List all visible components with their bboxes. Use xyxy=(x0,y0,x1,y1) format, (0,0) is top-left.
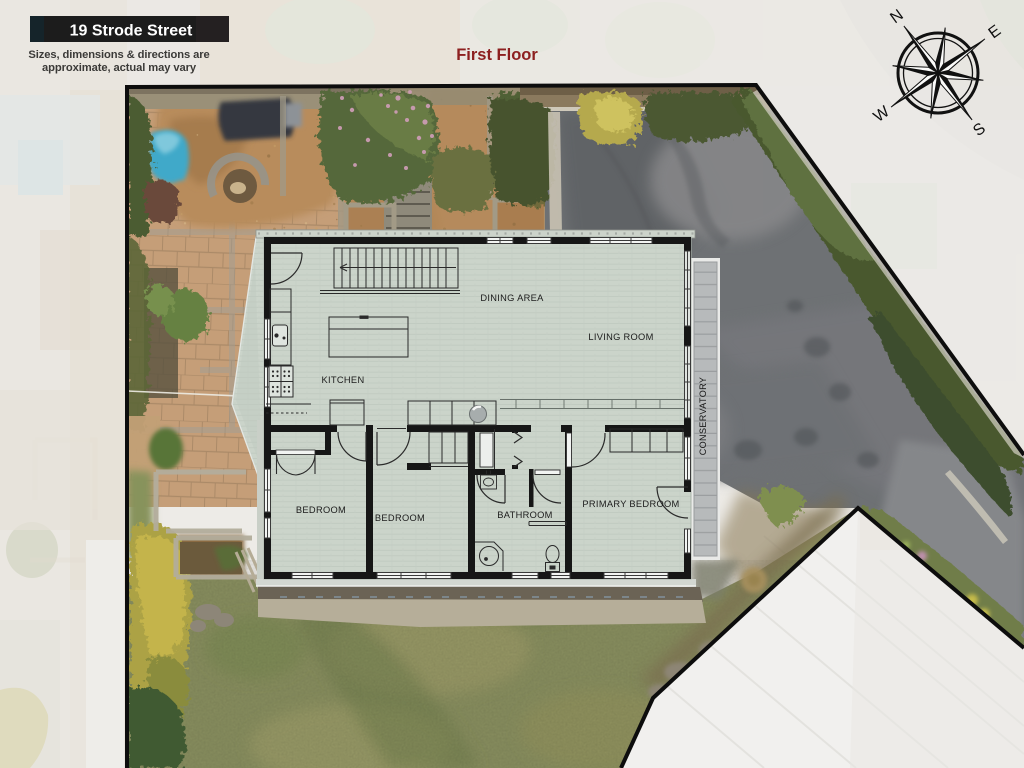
svg-text:KITCHEN: KITCHEN xyxy=(322,375,365,385)
svg-text:DINING AREA: DINING AREA xyxy=(480,293,544,303)
svg-text:PRIMARY BEDROOM: PRIMARY BEDROOM xyxy=(582,499,679,509)
svg-text:approximate, actual may vary: approximate, actual may vary xyxy=(42,62,197,74)
svg-text:CONSERVATORY: CONSERVATORY xyxy=(698,377,708,456)
svg-text:BEDROOM: BEDROOM xyxy=(375,513,425,523)
svg-text:19 Strode Street: 19 Strode Street xyxy=(70,23,193,40)
svg-text:Sizes, dimensions & directions: Sizes, dimensions & directions are xyxy=(28,49,209,61)
svg-text:BEDROOM: BEDROOM xyxy=(296,505,346,515)
svg-text:First Floor: First Floor xyxy=(456,46,538,64)
svg-text:LIVING ROOM: LIVING ROOM xyxy=(588,332,653,342)
svg-text:BATHROOM: BATHROOM xyxy=(497,510,552,520)
